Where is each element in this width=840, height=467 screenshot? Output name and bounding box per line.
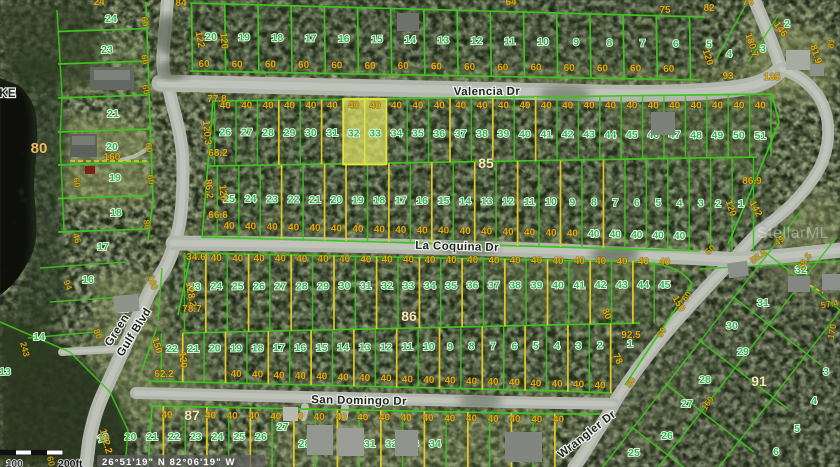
svg-text:60: 60 — [464, 62, 476, 73]
svg-text:40: 40 — [267, 222, 279, 233]
svg-text:40: 40 — [284, 101, 296, 112]
svg-text:40: 40 — [466, 414, 478, 425]
svg-text:6: 6 — [673, 38, 679, 50]
svg-text:43: 43 — [583, 129, 595, 141]
svg-text:17: 17 — [97, 241, 109, 253]
svg-text:120: 120 — [176, 351, 188, 369]
svg-text:29: 29 — [317, 280, 329, 292]
svg-text:40: 40 — [248, 411, 260, 422]
svg-text:44: 44 — [605, 129, 617, 141]
svg-text:60: 60 — [530, 63, 542, 74]
svg-text:40: 40 — [712, 101, 724, 112]
svg-text:13: 13 — [0, 366, 11, 378]
svg-text:40: 40 — [357, 412, 369, 423]
svg-text:24: 24 — [212, 431, 224, 443]
svg-text:27: 27 — [681, 398, 693, 410]
svg-text:23: 23 — [101, 44, 113, 56]
svg-text:40: 40 — [552, 256, 564, 267]
svg-text:40: 40 — [531, 256, 543, 267]
svg-text:20: 20 — [205, 31, 217, 43]
svg-text:40: 40 — [481, 227, 493, 238]
svg-text:35: 35 — [412, 128, 424, 140]
svg-text:40: 40 — [487, 377, 499, 388]
svg-text:40: 40 — [488, 414, 500, 425]
svg-text:40: 40 — [498, 101, 510, 112]
svg-text:40: 40 — [422, 413, 434, 424]
svg-text:41: 41 — [540, 129, 552, 141]
svg-text:68.2: 68.2 — [208, 148, 228, 159]
svg-text:14: 14 — [33, 331, 45, 343]
svg-text:40: 40 — [434, 101, 446, 112]
svg-text:14: 14 — [404, 34, 416, 46]
svg-text:40: 40 — [314, 412, 326, 423]
svg-text:78.7: 78.7 — [182, 304, 202, 315]
svg-text:60: 60 — [398, 61, 410, 72]
svg-text:40: 40 — [370, 101, 382, 112]
svg-text:40: 40 — [224, 221, 236, 232]
svg-text:28: 28 — [699, 374, 711, 386]
svg-text:200ft: 200ft — [58, 458, 83, 467]
svg-text:2: 2 — [597, 340, 603, 352]
svg-text:40: 40 — [460, 226, 472, 237]
svg-text:40: 40 — [594, 380, 606, 391]
svg-text:37: 37 — [455, 128, 467, 140]
svg-text:31: 31 — [360, 280, 372, 292]
svg-text:82: 82 — [703, 3, 715, 14]
svg-text:16: 16 — [82, 274, 94, 286]
svg-text:StellarML: StellarML — [757, 225, 829, 242]
svg-text:40: 40 — [573, 380, 585, 391]
svg-text:40: 40 — [616, 256, 628, 267]
svg-text:40: 40 — [273, 370, 285, 381]
svg-text:40: 40 — [252, 370, 264, 381]
svg-text:40: 40 — [263, 101, 275, 112]
svg-text:45: 45 — [659, 279, 671, 291]
svg-text:12: 12 — [471, 35, 483, 47]
svg-text:16: 16 — [416, 195, 428, 207]
svg-text:120: 120 — [217, 32, 229, 50]
svg-text:11: 11 — [524, 196, 535, 208]
svg-text:43: 43 — [616, 279, 628, 291]
svg-text:93: 93 — [722, 71, 734, 82]
svg-text:13: 13 — [481, 196, 493, 208]
svg-text:40: 40 — [552, 279, 564, 291]
svg-text:34: 34 — [424, 280, 436, 292]
svg-text:80: 80 — [31, 140, 48, 157]
svg-text:22: 22 — [166, 343, 178, 355]
svg-text:60: 60 — [71, 177, 83, 189]
svg-text:18: 18 — [272, 32, 284, 44]
svg-text:40: 40 — [423, 375, 435, 386]
svg-text:40: 40 — [631, 230, 643, 241]
svg-text:2: 2 — [715, 198, 721, 210]
svg-text:42: 42 — [595, 279, 607, 291]
svg-text:40: 40 — [205, 411, 217, 422]
svg-text:15: 15 — [438, 195, 450, 207]
svg-text:40: 40 — [552, 379, 564, 390]
svg-text:40: 40 — [648, 101, 660, 112]
svg-text:15: 15 — [316, 342, 328, 354]
svg-text:40: 40 — [626, 101, 638, 112]
svg-text:7: 7 — [640, 37, 646, 49]
svg-text:60: 60 — [198, 59, 210, 70]
svg-text:40: 40 — [231, 369, 243, 380]
svg-text:40: 40 — [412, 101, 424, 112]
svg-text:40: 40 — [584, 101, 596, 112]
svg-text:40: 40 — [524, 228, 536, 239]
svg-text:76: 76 — [742, 0, 754, 8]
svg-text:19: 19 — [109, 172, 121, 184]
svg-text:40: 40 — [509, 378, 521, 389]
svg-text:13: 13 — [359, 342, 371, 354]
svg-text:60: 60 — [431, 62, 443, 73]
svg-text:40: 40 — [455, 101, 467, 112]
svg-text:26: 26 — [253, 281, 265, 293]
svg-text:10: 10 — [545, 196, 557, 208]
svg-text:40: 40 — [295, 371, 307, 382]
svg-text:48: 48 — [690, 129, 702, 141]
svg-text:14: 14 — [459, 195, 471, 207]
svg-text:33: 33 — [403, 280, 415, 292]
svg-text:23: 23 — [266, 193, 278, 205]
svg-text:60: 60 — [139, 16, 151, 28]
svg-text:120.3: 120.3 — [200, 120, 213, 146]
svg-text:60: 60 — [497, 62, 509, 73]
svg-text:4: 4 — [811, 395, 817, 407]
svg-text:11: 11 — [504, 35, 515, 47]
svg-text:29: 29 — [737, 346, 749, 358]
svg-text:40: 40 — [659, 257, 671, 268]
svg-text:12: 12 — [502, 196, 514, 208]
svg-text:26: 26 — [661, 430, 673, 442]
svg-text:40: 40 — [424, 255, 436, 266]
svg-text:40: 40 — [553, 415, 565, 426]
svg-text:40: 40 — [510, 256, 522, 267]
svg-text:10: 10 — [537, 36, 549, 48]
svg-text:40: 40 — [352, 224, 364, 235]
svg-text:17: 17 — [273, 342, 285, 354]
svg-text:86: 86 — [401, 308, 417, 324]
svg-text:6: 6 — [773, 446, 779, 458]
svg-text:60: 60 — [232, 59, 244, 70]
svg-text:40: 40 — [241, 101, 253, 112]
svg-text:41: 41 — [573, 279, 585, 291]
svg-text:40: 40 — [567, 229, 579, 240]
svg-text:40: 40 — [359, 373, 371, 384]
svg-text:92.5: 92.5 — [621, 330, 641, 341]
svg-text:40: 40 — [305, 101, 317, 112]
svg-text:La Coquina Dr: La Coquina Dr — [415, 240, 499, 254]
svg-text:40: 40 — [335, 412, 347, 423]
svg-text:120: 120 — [216, 184, 228, 202]
svg-text:40: 40 — [338, 372, 350, 383]
svg-text:40: 40 — [541, 101, 553, 112]
svg-text:23: 23 — [190, 431, 202, 443]
svg-text:19: 19 — [238, 32, 250, 44]
svg-text:40: 40 — [467, 255, 479, 266]
svg-text:40: 40 — [339, 254, 351, 265]
svg-text:10: 10 — [423, 341, 435, 353]
svg-text:22: 22 — [168, 431, 180, 443]
svg-text:40: 40 — [270, 411, 282, 422]
svg-text:60: 60 — [139, 54, 151, 66]
svg-text:40: 40 — [733, 101, 745, 112]
svg-text:7: 7 — [612, 197, 618, 209]
svg-text:25: 25 — [233, 431, 245, 443]
svg-text:34.6: 34.6 — [186, 252, 206, 263]
svg-text:50: 50 — [733, 130, 745, 142]
svg-text:40: 40 — [211, 253, 223, 264]
svg-text:81: 81 — [825, 38, 837, 50]
svg-text:44: 44 — [638, 279, 650, 291]
svg-text:1: 1 — [738, 198, 744, 210]
svg-text:40: 40 — [610, 230, 622, 241]
svg-text:36: 36 — [467, 280, 479, 292]
svg-text:40: 40 — [245, 222, 257, 233]
svg-text:49: 49 — [712, 130, 724, 142]
svg-text:40: 40 — [296, 254, 308, 265]
svg-text:40: 40 — [488, 255, 500, 266]
svg-text:9: 9 — [447, 341, 453, 353]
svg-text:5: 5 — [655, 197, 661, 209]
svg-text:29: 29 — [284, 127, 296, 139]
svg-text:60: 60 — [630, 64, 642, 75]
svg-text:40: 40 — [445, 376, 457, 387]
svg-text:24: 24 — [245, 193, 257, 205]
svg-text:9: 9 — [573, 36, 579, 48]
svg-text:18: 18 — [374, 195, 386, 207]
svg-text:60: 60 — [564, 63, 576, 74]
svg-text:40: 40 — [316, 372, 328, 383]
svg-text:40: 40 — [755, 101, 767, 112]
svg-text:40: 40 — [674, 231, 686, 242]
svg-text:40: 40 — [588, 229, 600, 240]
svg-text:40: 40 — [360, 254, 372, 265]
svg-text:100: 100 — [6, 459, 23, 467]
svg-text:40: 40 — [444, 413, 456, 424]
svg-text:27: 27 — [275, 281, 287, 293]
svg-text:21: 21 — [146, 431, 158, 443]
svg-text:40: 40 — [417, 225, 429, 236]
svg-text:40: 40 — [446, 255, 458, 266]
svg-text:24: 24 — [105, 13, 117, 25]
svg-text:40: 40 — [466, 376, 478, 387]
svg-text:86.9: 86.9 — [742, 176, 762, 187]
svg-text:19: 19 — [230, 343, 242, 355]
svg-text:60: 60 — [331, 61, 343, 72]
svg-text:60: 60 — [597, 63, 609, 74]
svg-text:80: 80 — [141, 219, 153, 231]
svg-text:15: 15 — [371, 33, 383, 45]
svg-text:40: 40 — [503, 227, 515, 238]
svg-text:3: 3 — [823, 366, 829, 378]
svg-text:40: 40 — [309, 223, 321, 234]
svg-text:8: 8 — [591, 197, 597, 209]
svg-text:18: 18 — [110, 207, 122, 219]
svg-text:26: 26 — [219, 127, 231, 139]
svg-text:75: 75 — [659, 5, 671, 16]
svg-text:28: 28 — [262, 127, 274, 139]
svg-text:33: 33 — [369, 128, 381, 140]
svg-text:13: 13 — [438, 34, 450, 46]
svg-text:77.8: 77.8 — [207, 94, 227, 105]
svg-text:8: 8 — [469, 341, 475, 353]
svg-text:85: 85 — [478, 155, 494, 171]
svg-text:38: 38 — [476, 128, 488, 140]
svg-text:40: 40 — [509, 414, 521, 425]
svg-text:40: 40 — [227, 411, 239, 422]
svg-text:40: 40 — [275, 254, 287, 265]
svg-text:17: 17 — [395, 195, 407, 207]
svg-text:40: 40 — [348, 101, 360, 112]
svg-text:5: 5 — [533, 340, 539, 352]
svg-text:17: 17 — [305, 33, 317, 45]
svg-text:9: 9 — [569, 196, 575, 208]
svg-text:40: 40 — [669, 101, 681, 112]
svg-text:31: 31 — [326, 127, 338, 139]
svg-text:35: 35 — [445, 280, 457, 292]
svg-text:31: 31 — [757, 297, 769, 309]
svg-text:21: 21 — [309, 194, 321, 206]
svg-text:12: 12 — [380, 341, 392, 353]
svg-text:40: 40 — [288, 222, 300, 233]
svg-text:38: 38 — [509, 280, 521, 292]
svg-text:4: 4 — [554, 340, 560, 352]
svg-text:40: 40 — [232, 253, 244, 264]
svg-text:40: 40 — [161, 410, 173, 421]
svg-text:60: 60 — [663, 64, 675, 75]
svg-text:32: 32 — [348, 127, 360, 139]
svg-text:LAKE: LAKE — [0, 88, 16, 100]
svg-text:39: 39 — [531, 280, 543, 292]
svg-text:60: 60 — [298, 60, 310, 71]
svg-text:64: 64 — [505, 0, 517, 8]
svg-text:60: 60 — [143, 142, 155, 154]
svg-text:40: 40 — [531, 414, 543, 425]
svg-text:60: 60 — [265, 60, 277, 71]
svg-text:26°51'19" N 82°06'19" W: 26°51'19" N 82°06'19" W — [102, 457, 236, 467]
svg-text:40: 40 — [653, 231, 665, 242]
svg-text:34: 34 — [429, 438, 441, 450]
svg-text:30: 30 — [305, 127, 317, 139]
svg-text:6: 6 — [634, 197, 640, 209]
svg-text:36: 36 — [433, 128, 445, 140]
svg-text:40: 40 — [595, 256, 607, 267]
svg-text:31: 31 — [364, 438, 376, 450]
svg-text:51: 51 — [754, 130, 766, 142]
svg-text:40: 40 — [530, 378, 542, 389]
svg-text:40: 40 — [391, 101, 403, 112]
svg-text:40: 40 — [545, 228, 557, 239]
svg-text:40: 40 — [379, 413, 391, 424]
svg-text:40: 40 — [605, 101, 617, 112]
svg-text:40: 40 — [401, 413, 413, 424]
svg-text:16: 16 — [295, 342, 307, 354]
svg-text:60: 60 — [145, 174, 157, 186]
svg-text:42: 42 — [562, 129, 574, 141]
svg-text:25: 25 — [232, 281, 244, 293]
svg-text:21: 21 — [188, 343, 200, 355]
svg-text:40: 40 — [374, 224, 386, 235]
svg-text:40: 40 — [318, 254, 330, 265]
svg-text:7: 7 — [490, 341, 496, 353]
svg-text:40: 40 — [519, 128, 531, 140]
svg-text:19: 19 — [352, 194, 364, 206]
svg-text:14: 14 — [337, 342, 349, 354]
svg-text:40: 40 — [331, 223, 343, 234]
svg-text:26: 26 — [255, 431, 267, 443]
svg-text:3: 3 — [760, 43, 766, 55]
svg-text:3: 3 — [576, 340, 582, 352]
svg-text:135: 135 — [764, 72, 781, 83]
svg-text:24: 24 — [93, 0, 105, 8]
svg-text:20: 20 — [331, 194, 343, 206]
svg-text:11: 11 — [402, 341, 413, 353]
svg-text:6: 6 — [511, 340, 517, 352]
svg-text:60: 60 — [364, 61, 376, 72]
svg-text:39: 39 — [498, 128, 510, 140]
svg-text:37: 37 — [488, 280, 500, 292]
svg-text:18: 18 — [252, 342, 264, 354]
svg-text:21: 21 — [107, 108, 119, 120]
svg-text:Valencia Dr: Valencia Dr — [454, 86, 521, 99]
svg-text:40: 40 — [402, 374, 414, 385]
svg-text:40: 40 — [691, 101, 703, 112]
svg-text:4: 4 — [677, 197, 683, 209]
svg-text:62.2: 62.2 — [154, 369, 174, 380]
svg-text:40: 40 — [438, 226, 450, 237]
svg-text:8: 8 — [606, 37, 612, 49]
svg-text:24: 24 — [210, 281, 222, 293]
svg-text:4: 4 — [726, 48, 732, 60]
svg-text:40: 40 — [638, 257, 650, 268]
svg-text:40: 40 — [574, 256, 586, 267]
svg-text:86.2: 86.2 — [202, 179, 215, 200]
svg-text:91: 91 — [751, 373, 767, 389]
svg-text:25: 25 — [628, 447, 640, 459]
svg-text:16: 16 — [338, 33, 350, 45]
svg-text:40: 40 — [380, 374, 392, 385]
svg-text:28: 28 — [296, 280, 308, 292]
svg-text:40: 40 — [327, 101, 339, 112]
svg-text:3: 3 — [698, 198, 704, 210]
svg-text:5: 5 — [794, 423, 800, 435]
svg-text:84: 84 — [175, 0, 187, 9]
svg-text:30: 30 — [339, 280, 351, 292]
svg-text:40: 40 — [562, 101, 574, 112]
svg-text:22: 22 — [288, 194, 300, 206]
svg-text:27: 27 — [277, 421, 289, 433]
svg-text:40: 40 — [519, 101, 531, 112]
svg-text:60: 60 — [140, 84, 152, 96]
svg-text:32: 32 — [381, 280, 393, 292]
svg-text:40: 40 — [395, 225, 407, 236]
svg-text:40: 40 — [254, 254, 266, 265]
svg-text:San Domingo Dr: San Domingo Dr — [311, 394, 407, 408]
svg-text:20: 20 — [209, 343, 221, 355]
svg-text:34: 34 — [391, 128, 403, 140]
svg-text:27: 27 — [241, 127, 253, 139]
svg-text:40: 40 — [382, 255, 394, 266]
svg-text:40: 40 — [403, 255, 415, 266]
svg-text:30: 30 — [726, 320, 738, 332]
svg-text:40: 40 — [477, 101, 489, 112]
svg-text:87: 87 — [184, 407, 200, 423]
svg-text:66.6: 66.6 — [208, 210, 228, 221]
svg-text:45: 45 — [626, 129, 638, 141]
